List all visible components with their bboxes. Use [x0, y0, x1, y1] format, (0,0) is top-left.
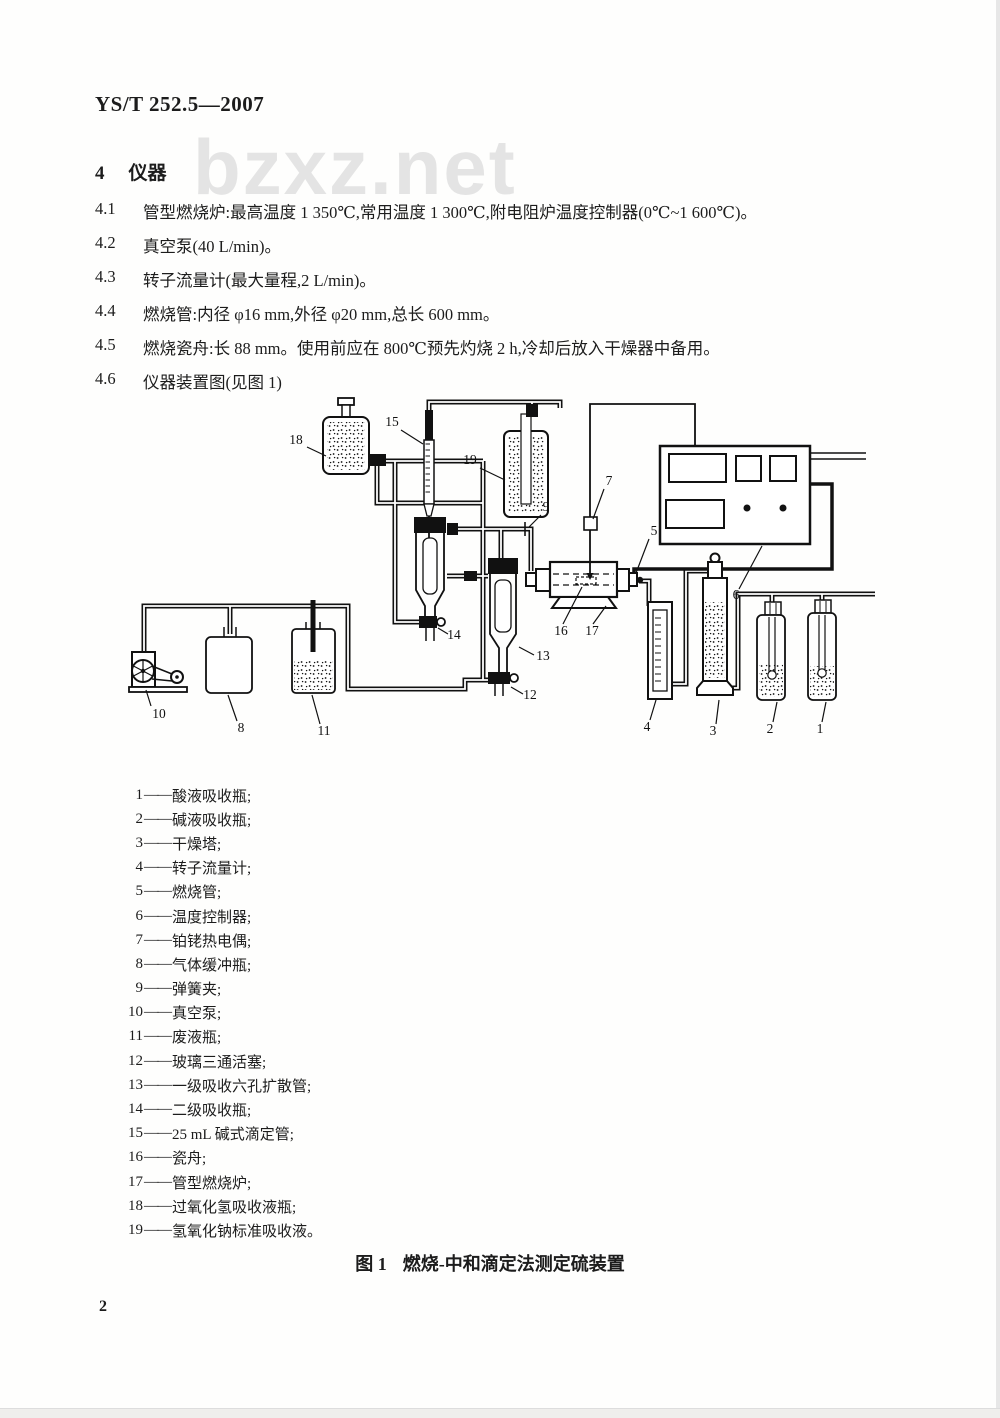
waste-bottle-11 [292, 600, 335, 693]
legend-text: 一级吸收六孔扩散管; [172, 1075, 311, 1096]
document-page: YS/T 252.5—2007 bzxz.net 4仪器 4.1管型燃烧炉:最高… [0, 0, 1000, 1418]
diagram-label-6: 6 [733, 587, 740, 602]
legend-text: 二级吸收瓶; [172, 1099, 251, 1120]
temp-controller-6 [660, 446, 810, 544]
legend-text: 铂铑热电偶; [172, 930, 251, 951]
diagram-label-8: 8 [238, 720, 245, 735]
legend-text: 氢氧化钠标准吸收液。 [172, 1220, 322, 1241]
pump-base [129, 687, 187, 692]
legend-text: 弹簧夹; [172, 978, 221, 999]
link-fitting [464, 571, 477, 581]
figure-caption-label: 图 1 [355, 1254, 387, 1274]
legend-num: 19 [117, 1222, 143, 1239]
controller-display-2 [666, 500, 724, 528]
legend-dash: —— [144, 1004, 170, 1021]
legend-item: 10——真空泵; [117, 1001, 322, 1025]
legend-text: 废液瓶; [172, 1026, 221, 1047]
clause-number: 4.4 [95, 301, 143, 325]
clause-number: 4.2 [95, 233, 143, 257]
clause-text: 管型燃烧炉:最高温度 1 350℃,常用温度 1 300℃,附电阻炉温度控制器(… [143, 199, 757, 223]
diagram-label-7: 7 [606, 473, 613, 488]
legend-item: 13——一级吸收六孔扩散管; [117, 1073, 322, 1097]
legend-num: 8 [117, 956, 143, 973]
diagram-label-13: 13 [536, 648, 550, 663]
buffer-bottle-8 [206, 627, 252, 693]
vessel-13-diffuser [464, 558, 518, 672]
figure-caption-title: 燃烧-中和滴定法测定硫装置 [403, 1254, 625, 1274]
vessel-14-stopper [414, 517, 446, 533]
legend-dash: —— [144, 908, 170, 925]
clause-4-1: 4.1管型燃烧炉:最高温度 1 350℃,常用温度 1 300℃,附电阻炉温度控… [95, 199, 925, 223]
clause-number: 4.3 [95, 267, 143, 291]
thermocouple-connector [584, 517, 597, 530]
bottle-18-fitting [369, 454, 386, 466]
legend-num: 6 [117, 908, 143, 925]
legend-num: 7 [117, 932, 143, 949]
legend-num: 3 [117, 835, 143, 852]
legend-dash: —— [144, 980, 170, 997]
legend-num: 16 [117, 1149, 143, 1166]
legend-text: 瓷舟; [172, 1147, 206, 1168]
legend-text: 玻璃三通活塞; [172, 1051, 266, 1072]
figure-legend: 1——酸液吸收瓶; 2——碱液吸收瓶; 3——干燥塔; 4——转子流量计; 5—… [117, 783, 322, 1243]
legend-item: 16——瓷舟; [117, 1146, 322, 1170]
controller-display-1 [669, 454, 726, 482]
legend-num: 2 [117, 811, 143, 828]
bottle-1-acid [808, 600, 836, 700]
bottle-18-peroxide [323, 398, 386, 474]
legend-num: 12 [117, 1053, 143, 1070]
clause-4-2: 4.2真空泵(40 L/min)。 [95, 233, 925, 257]
legend-dash: —— [144, 811, 170, 828]
legend-item: 18——过氧化氢吸收液瓶; [117, 1194, 322, 1218]
bottle-19-naoh [504, 404, 548, 517]
legend-num: 14 [117, 1101, 143, 1118]
legend-item: 3——干燥塔; [117, 831, 322, 855]
legend-dash: —— [144, 883, 170, 900]
legend-item: 2——碱液吸收瓶; [117, 807, 322, 831]
scan-edge-right [996, 0, 1000, 1418]
legend-num: 11 [117, 1028, 143, 1045]
tower-base [697, 681, 733, 695]
section-heading: 4仪器 [95, 158, 167, 185]
controller-knob-2 [780, 505, 787, 512]
vessel-14-absorber [414, 517, 458, 641]
legend-text: 碱液吸收瓶; [172, 809, 251, 830]
legend-text: 转子流量计; [172, 857, 251, 878]
drying-tower-3 [697, 554, 733, 696]
legend-num: 5 [117, 883, 143, 900]
legend-dash: —— [144, 787, 170, 804]
clause-text: 真空泵(40 L/min)。 [143, 233, 281, 257]
diagram-label-19: 19 [463, 452, 477, 467]
controller-window-2 [770, 456, 796, 481]
diagram-label-15: 15 [385, 414, 399, 429]
clause-4-3: 4.3转子流量计(最大量程,2 L/min)。 [95, 267, 925, 291]
controller-knob-1 [744, 505, 751, 512]
legend-item: 6——温度控制器; [117, 904, 322, 928]
legend-num: 18 [117, 1198, 143, 1215]
legend-text: 酸液吸收瓶; [172, 785, 251, 806]
legend-text: 气体缓冲瓶; [172, 954, 251, 975]
legend-item: 5——燃烧管; [117, 880, 322, 904]
clause-text: 转子流量计(最大量程,2 L/min)。 [143, 267, 376, 291]
scan-edge-bottom [0, 1408, 1000, 1418]
clause-4-5: 4.5燃烧瓷舟:长 88 mm。使用前应在 800℃预先灼烧 2 h,冷却后放入… [95, 335, 925, 359]
clause-number: 4.1 [95, 199, 143, 223]
legend-item: 7——铂铑热电偶; [117, 928, 322, 952]
legend-item: 9——弹簧夹; [117, 977, 322, 1001]
diagram-label-9: 9 [543, 499, 550, 514]
legend-dash: —— [144, 1222, 170, 1239]
figure-caption: 图 1燃烧-中和滴定法测定硫装置 [0, 1250, 980, 1276]
controller-window-1 [736, 456, 761, 481]
diagram-label-3: 3 [710, 723, 717, 738]
rotameter-4 [648, 602, 672, 699]
legend-dash: —— [144, 932, 170, 949]
legend-num: 15 [117, 1125, 143, 1142]
clause-text: 燃烧管:内径 φ16 mm,外径 φ20 mm,总长 600 mm。 [143, 301, 499, 325]
legend-num: 9 [117, 980, 143, 997]
legend-dash: —— [144, 1077, 170, 1094]
vacuum-pump-10 [129, 652, 187, 692]
diagram-label-18: 18 [289, 432, 303, 447]
legend-text: 过氧化氢吸收液瓶; [172, 1196, 296, 1217]
legend-item: 8——气体缓冲瓶; [117, 952, 322, 976]
combustion-tube-5-outlet [637, 577, 643, 583]
legend-num: 10 [117, 1004, 143, 1021]
diagram-label-2: 2 [767, 721, 774, 736]
legend-text: 燃烧管; [172, 881, 221, 902]
vessel-13-stopper [488, 558, 518, 574]
legend-item: 12——玻璃三通活塞; [117, 1049, 322, 1073]
legend-num: 1 [117, 787, 143, 804]
diagram-label-11: 11 [318, 723, 331, 738]
legend-item: 14——二级吸收瓶; [117, 1097, 322, 1121]
legend-dash: —— [144, 956, 170, 973]
furnace-17 [526, 562, 643, 608]
legend-item: 15——25 mL 碱式滴定管; [117, 1122, 322, 1146]
legend-text: 干燥塔; [172, 833, 221, 854]
legend-dash: —— [144, 1198, 170, 1215]
bottle-19-fitting [526, 404, 538, 417]
legend-dash: —— [144, 1101, 170, 1118]
clause-number: 4.5 [95, 335, 143, 359]
clause-text: 燃烧瓷舟:长 88 mm。使用前应在 800℃预先灼烧 2 h,冷却后放入干燥器… [143, 335, 720, 359]
clamp-line-fitting [447, 523, 458, 535]
vessel-14-stopcock [419, 616, 437, 628]
legend-dash: —— [144, 835, 170, 852]
legend-num: 4 [117, 859, 143, 876]
diagram-label-5: 5 [651, 523, 658, 538]
clause-list: 4.1管型燃烧炉:最高温度 1 350℃,常用温度 1 300℃,附电阻炉温度控… [95, 199, 925, 403]
legend-dash: —— [144, 1125, 170, 1142]
diagram-label-1: 1 [817, 721, 824, 736]
section-number: 4 [95, 163, 105, 184]
legend-text: 管型燃烧炉; [172, 1172, 251, 1193]
diagram-label-12: 12 [523, 687, 537, 702]
page-number: 2 [99, 1298, 107, 1316]
legend-num: 17 [117, 1174, 143, 1191]
stopcock-12 [488, 672, 518, 696]
diagram-label-16: 16 [554, 623, 568, 638]
legend-num: 13 [117, 1077, 143, 1094]
figure-1-apparatus-diagram: 18 15 19 7 6 9 5 14 13 12 16 17 4 3 2 1 … [120, 384, 880, 778]
diagram-label-17: 17 [585, 623, 599, 638]
clause-4-4: 4.4燃烧管:内径 φ16 mm,外径 φ20 mm,总长 600 mm。 [95, 301, 925, 325]
legend-dash: —— [144, 1028, 170, 1045]
doc-number: YS/T 252.5—2007 [95, 92, 264, 117]
legend-item: 17——管型燃烧炉; [117, 1170, 322, 1194]
legend-dash: —— [144, 1174, 170, 1191]
legend-text: 真空泵; [172, 1002, 221, 1023]
legend-item: 4——转子流量计; [117, 856, 322, 880]
legend-item: 19——氢氧化钠标准吸收液。 [117, 1218, 322, 1242]
legend-dash: —— [144, 859, 170, 876]
bottle-2-alkali [757, 602, 785, 700]
legend-text: 25 mL 碱式滴定管; [172, 1123, 294, 1144]
legend-dash: —— [144, 1149, 170, 1166]
section-title: 仪器 [129, 163, 167, 184]
diagram-label-14: 14 [447, 627, 461, 642]
legend-dash: —— [144, 1053, 170, 1070]
diagram-label-10: 10 [152, 706, 166, 721]
diagram-label-4: 4 [644, 719, 651, 734]
legend-item: 1——酸液吸收瓶; [117, 783, 322, 807]
legend-text: 温度控制器; [172, 906, 251, 927]
legend-item: 11——废液瓶; [117, 1025, 322, 1049]
